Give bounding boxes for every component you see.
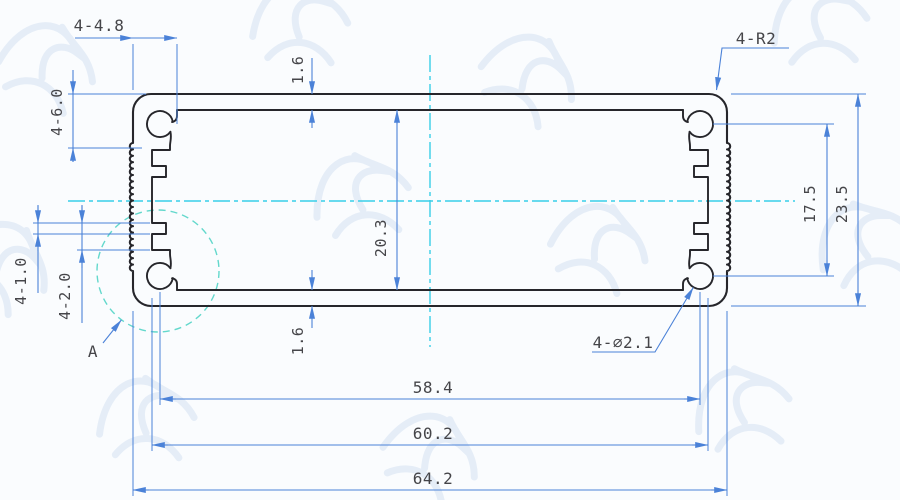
dim-outer-width-label: 64.2 bbox=[413, 469, 454, 488]
dim-wall-top-label: 1.6 bbox=[289, 56, 307, 85]
dim-wall-bottom-label: 1.6 bbox=[289, 327, 307, 356]
dim-rib-small-label: 4-1.0 bbox=[12, 257, 30, 305]
screw-boss-top-right bbox=[687, 111, 713, 137]
dimension-inner-height: 20.3 bbox=[372, 110, 397, 290]
callout-detail-A: A bbox=[88, 320, 121, 361]
dim-outer-height-label: 23.5 bbox=[833, 185, 851, 223]
dim-slot-span-label: 60.2 bbox=[413, 424, 454, 443]
callout-corner-radius-label: 4-R2 bbox=[736, 29, 777, 48]
dim-hole-pitch-h-label: 58.4 bbox=[413, 378, 454, 397]
right-wall-ribs bbox=[689, 132, 708, 268]
screw-boss-bottom-right bbox=[687, 263, 713, 289]
dimension-wall-bottom: 1.6 bbox=[289, 270, 312, 355]
dimension-outer-height: 23.5 bbox=[731, 94, 866, 306]
callout-hole-diameter: 4-∅2.1 bbox=[592, 288, 693, 353]
callout-detail-A-label: A bbox=[88, 342, 98, 361]
callout-corner-radius: 4-R2 bbox=[717, 29, 790, 90]
screw-boss-top-left bbox=[147, 111, 173, 137]
dim-rib-large-label: 4-2.0 bbox=[56, 272, 74, 320]
dimension-corner-zone-height: 4-6.0 bbox=[48, 70, 146, 162]
dim-inner-height-label: 20.3 bbox=[372, 219, 390, 257]
left-wall-ribs bbox=[152, 132, 171, 268]
technical-drawing-page: 4-4.8 4-6.0 1.6 20.3 1.6 4-1.0 bbox=[0, 0, 900, 500]
callout-hole-diameter-label: 4-∅2.1 bbox=[593, 333, 654, 352]
detail-circle-A bbox=[97, 210, 219, 332]
dim-top-slot-width-label: 4-4.8 bbox=[74, 16, 125, 35]
screw-boss-bottom-left bbox=[147, 263, 173, 289]
technical-drawing-canvas: 4-4.8 4-6.0 1.6 20.3 1.6 4-1.0 bbox=[0, 0, 900, 500]
dim-hole-pitch-v-label: 17.5 bbox=[801, 185, 819, 223]
dimension-wall-top: 1.6 bbox=[289, 56, 312, 128]
dim-corner-zone-height-label: 4-6.0 bbox=[48, 88, 66, 136]
